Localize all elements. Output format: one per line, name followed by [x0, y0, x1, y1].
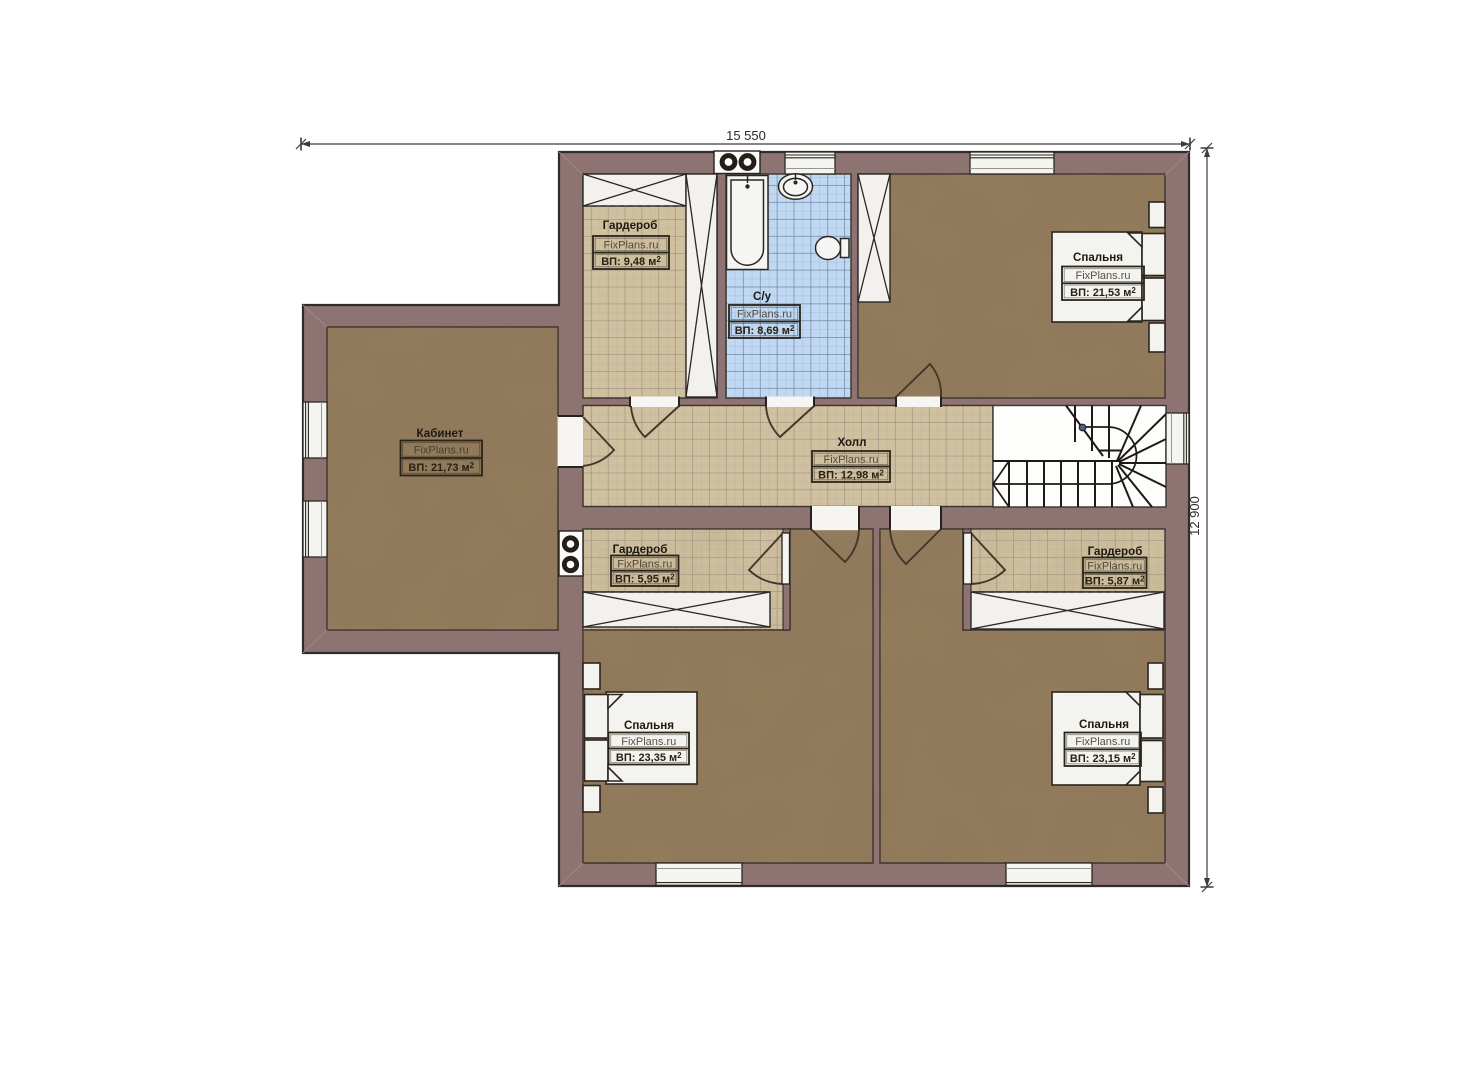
svg-text:ВП: 5,95 м2: ВП: 5,95 м2	[615, 573, 675, 586]
svg-text:Гардероб: Гардероб	[603, 219, 658, 232]
svg-text:15 550: 15 550	[726, 128, 766, 143]
svg-text:Кабинет: Кабинет	[417, 427, 464, 440]
svg-text:ВП: 5,87 м2: ВП: 5,87 м2	[1085, 575, 1145, 588]
svg-text:ВП: 23,15 м2: ВП: 23,15 м2	[1070, 752, 1136, 765]
svg-text:FixPlans.ru: FixPlans.ru	[1087, 560, 1142, 572]
svg-text:FixPlans.ru: FixPlans.ru	[414, 445, 469, 457]
svg-text:FixPlans.ru: FixPlans.ru	[823, 454, 878, 466]
svg-text:FixPlans.ru: FixPlans.ru	[1075, 736, 1130, 748]
svg-text:FixPlans.ru: FixPlans.ru	[1075, 270, 1130, 282]
svg-text:Гардероб: Гардероб	[1088, 545, 1143, 558]
svg-text:FixPlans.ru: FixPlans.ru	[737, 309, 792, 321]
svg-text:Спальня: Спальня	[1073, 251, 1123, 264]
svg-text:ВП: 8,69 м2: ВП: 8,69 м2	[735, 324, 795, 337]
svg-text:FixPlans.ru: FixPlans.ru	[617, 558, 672, 570]
svg-text:Гардероб: Гардероб	[613, 543, 668, 556]
svg-text:Холл: Холл	[837, 436, 866, 449]
svg-text:ВП: 21,73 м2: ВП: 21,73 м2	[408, 461, 474, 474]
svg-text:ВП: 12,98 м2: ВП: 12,98 м2	[818, 469, 884, 482]
svg-text:С/у: С/у	[753, 290, 772, 303]
svg-text:ВП: 9,48 м2: ВП: 9,48 м2	[601, 255, 661, 268]
svg-text:Спальня: Спальня	[1079, 718, 1129, 731]
svg-text:FixPlans.ru: FixPlans.ru	[603, 240, 658, 252]
svg-text:Спальня: Спальня	[624, 719, 674, 732]
svg-text:FixPlans.ru: FixPlans.ru	[621, 736, 676, 748]
svg-text:ВП: 23,35 м2: ВП: 23,35 м2	[616, 751, 682, 764]
svg-text:ВП: 21,53 м2: ВП: 21,53 м2	[1070, 286, 1136, 299]
svg-text:12 900: 12 900	[1187, 496, 1202, 536]
